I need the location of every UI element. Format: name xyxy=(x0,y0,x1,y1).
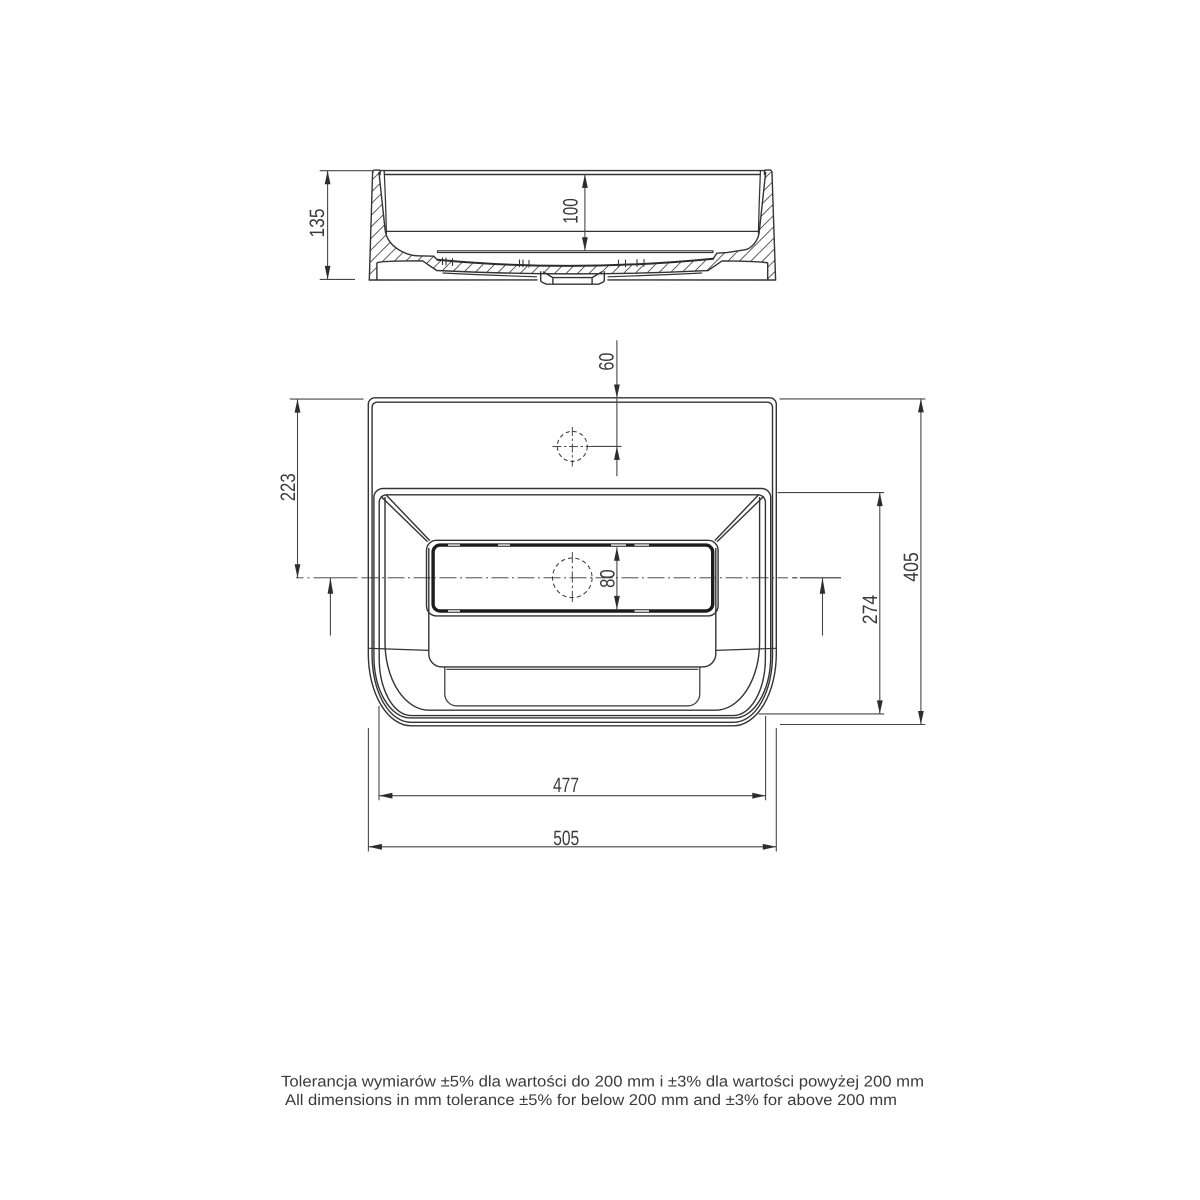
svg-text:All dimensions in mm tolerance: All dimensions in mm tolerance ±5% for b… xyxy=(285,1092,897,1109)
svg-text:135: 135 xyxy=(306,209,329,238)
svg-text:Tolerancja wymiarów ±5% dla wa: Tolerancja wymiarów ±5% dla wartości do … xyxy=(281,1073,924,1090)
svg-text:60: 60 xyxy=(595,353,618,371)
svg-text:405: 405 xyxy=(900,552,923,582)
svg-text:477: 477 xyxy=(553,774,579,797)
svg-text:274: 274 xyxy=(859,595,882,625)
svg-text:505: 505 xyxy=(553,827,579,850)
svg-text:80: 80 xyxy=(597,569,620,588)
svg-text:100: 100 xyxy=(560,198,583,224)
svg-text:223: 223 xyxy=(277,473,300,501)
